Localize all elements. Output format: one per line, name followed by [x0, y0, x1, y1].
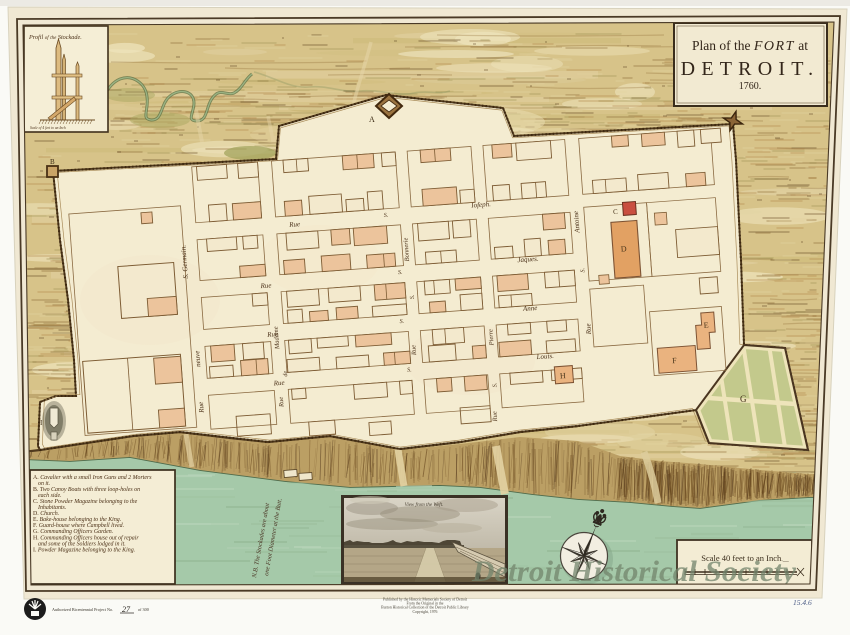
- svg-text:S.: S.: [384, 213, 389, 219]
- svg-text:C: C: [613, 208, 619, 216]
- svg-text:de: de: [283, 370, 289, 376]
- svg-text:neuve: neuve: [193, 350, 202, 367]
- svg-text:A: A: [369, 115, 375, 124]
- svg-text:15.4.6: 15.4.6: [793, 598, 812, 607]
- svg-text:Rue: Rue: [272, 379, 284, 388]
- svg-text:Rue: Rue: [410, 345, 418, 357]
- svg-text:Jaques.: Jaques.: [517, 255, 539, 265]
- svg-text:S.: S.: [399, 319, 404, 325]
- svg-text:Rue: Rue: [278, 396, 286, 408]
- svg-text:Rue: Rue: [584, 323, 593, 335]
- svg-text:Rue: Rue: [491, 411, 499, 423]
- svg-text:Rue: Rue: [259, 281, 271, 290]
- svg-text:Antoine: Antoine: [572, 211, 582, 234]
- svg-text:S.: S.: [407, 367, 412, 373]
- svg-text:Plan of the FORT at: Plan of the FORT at: [692, 38, 808, 54]
- svg-text:Rue: Rue: [197, 402, 206, 414]
- svg-text:View from the Weft.: View from the Weft.: [405, 503, 444, 508]
- svg-text:G: G: [740, 394, 747, 404]
- svg-text:H. Commanding Officers house o: H. Commanding Officers house out of repa…: [33, 534, 139, 541]
- svg-text:B: B: [50, 158, 55, 166]
- svg-text:A. Cavalier with a small Iron: A. Cavalier with a small Iron Guns and 2…: [33, 475, 152, 481]
- svg-text:Detroit Historical Society: Detroit Historical Society: [471, 555, 797, 588]
- svg-text:S.: S.: [580, 268, 586, 273]
- svg-text:E. Bake-house belonging to the: E. Bake-house belonging to the King.: [33, 517, 121, 523]
- svg-text:Iofeph.: Iofeph.: [470, 200, 491, 210]
- svg-text:G. Commanding Officers Garden.: G. Commanding Officers Garden.: [33, 528, 113, 535]
- svg-text:I. Powder Magazine belonging t: I. Powder Magazine belonging to the King…: [33, 547, 135, 553]
- svg-text:DETROIT.: DETROIT.: [681, 58, 820, 80]
- svg-text:Pierre: Pierre: [487, 329, 495, 347]
- svg-text:C. Stone Powder Magazine belon: C. Stone Powder Magazine belonging to th…: [33, 499, 138, 505]
- svg-text:Profil of the Stockade.: Profil of the Stockade.: [28, 34, 82, 41]
- svg-text:Authorized Bicentennial Projec: Authorized Bicentennial Project No.: [52, 607, 113, 612]
- svg-text:S.: S.: [398, 270, 403, 276]
- svg-text:Louis.: Louis.: [535, 352, 554, 361]
- svg-text:Rue: Rue: [288, 220, 300, 229]
- svg-text:of 300: of 300: [138, 607, 149, 612]
- svg-text:B. Two Canoy Boats with three: B. Two Canoy Boats with three loop-holes…: [33, 487, 140, 493]
- svg-text:Scale of 4 feet to an Inch: Scale of 4 feet to an Inch: [30, 126, 66, 130]
- svg-text:H: H: [560, 371, 567, 380]
- svg-text:Anne: Anne: [522, 304, 538, 313]
- svg-text:and some of the Soldiers lodge: and some of the Soldiers lodged in it.: [38, 540, 126, 547]
- svg-text:D: D: [621, 244, 628, 253]
- svg-text:E: E: [703, 320, 709, 329]
- svg-text:S.: S.: [410, 294, 416, 299]
- svg-text:1760.: 1760.: [739, 81, 762, 92]
- svg-text:S.: S.: [492, 383, 498, 388]
